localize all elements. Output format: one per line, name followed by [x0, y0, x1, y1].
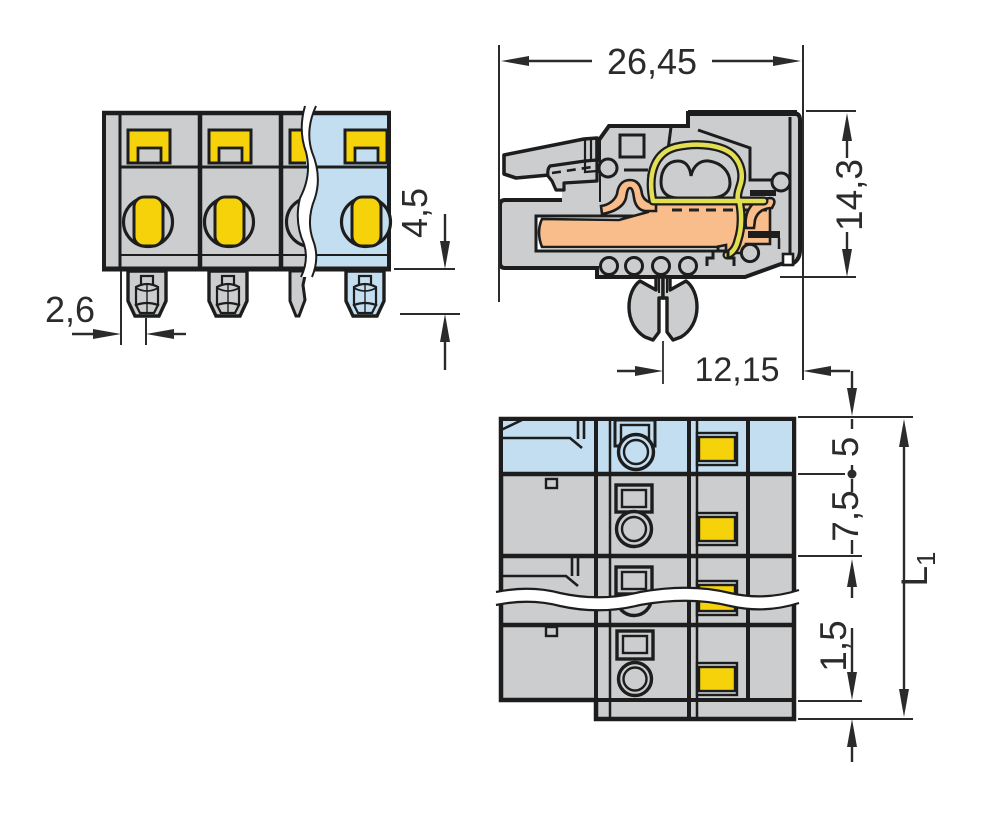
svg-text:5: 5: [825, 437, 866, 458]
svg-text:12,15: 12,15: [694, 351, 779, 389]
svg-text:2,6: 2,6: [45, 289, 95, 330]
svg-text:L1: L1: [894, 551, 941, 586]
svg-text:14,3: 14,3: [829, 159, 870, 231]
svg-text:4,5: 4,5: [394, 188, 435, 238]
svg-text:7,5: 7,5: [825, 490, 866, 541]
svg-text:26,45: 26,45: [607, 41, 697, 82]
svg-text:1,5: 1,5: [813, 620, 854, 671]
